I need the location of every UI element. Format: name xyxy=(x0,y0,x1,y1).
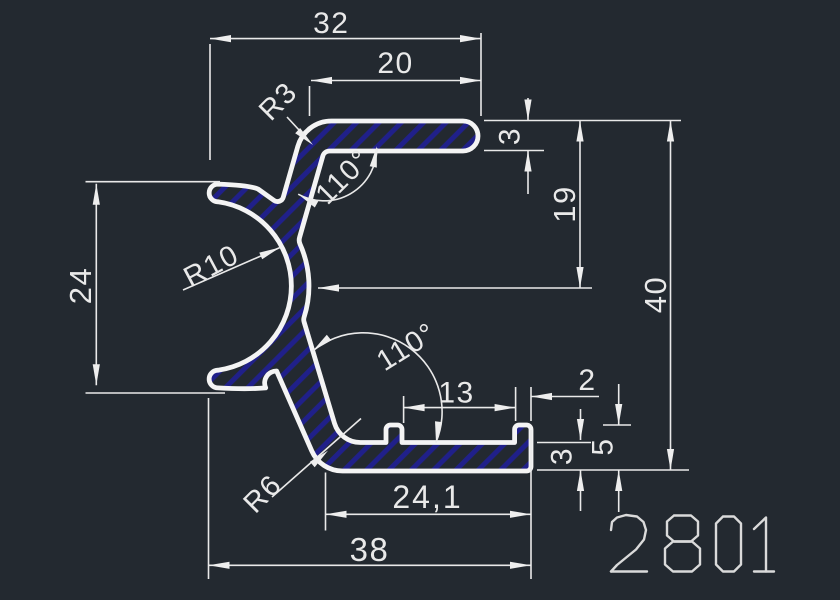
svg-text:3: 3 xyxy=(546,447,579,465)
svg-text:20: 20 xyxy=(377,47,413,80)
svg-text:38: 38 xyxy=(350,531,390,568)
svg-text:19: 19 xyxy=(547,185,582,222)
svg-text:24: 24 xyxy=(63,267,98,304)
svg-text:24,1: 24,1 xyxy=(392,479,462,515)
svg-text:40: 40 xyxy=(638,276,673,313)
svg-text:32: 32 xyxy=(313,7,349,40)
svg-text:3: 3 xyxy=(494,127,527,145)
svg-text:2: 2 xyxy=(578,364,596,397)
svg-text:5: 5 xyxy=(587,437,620,455)
svg-text:13: 13 xyxy=(438,377,474,410)
